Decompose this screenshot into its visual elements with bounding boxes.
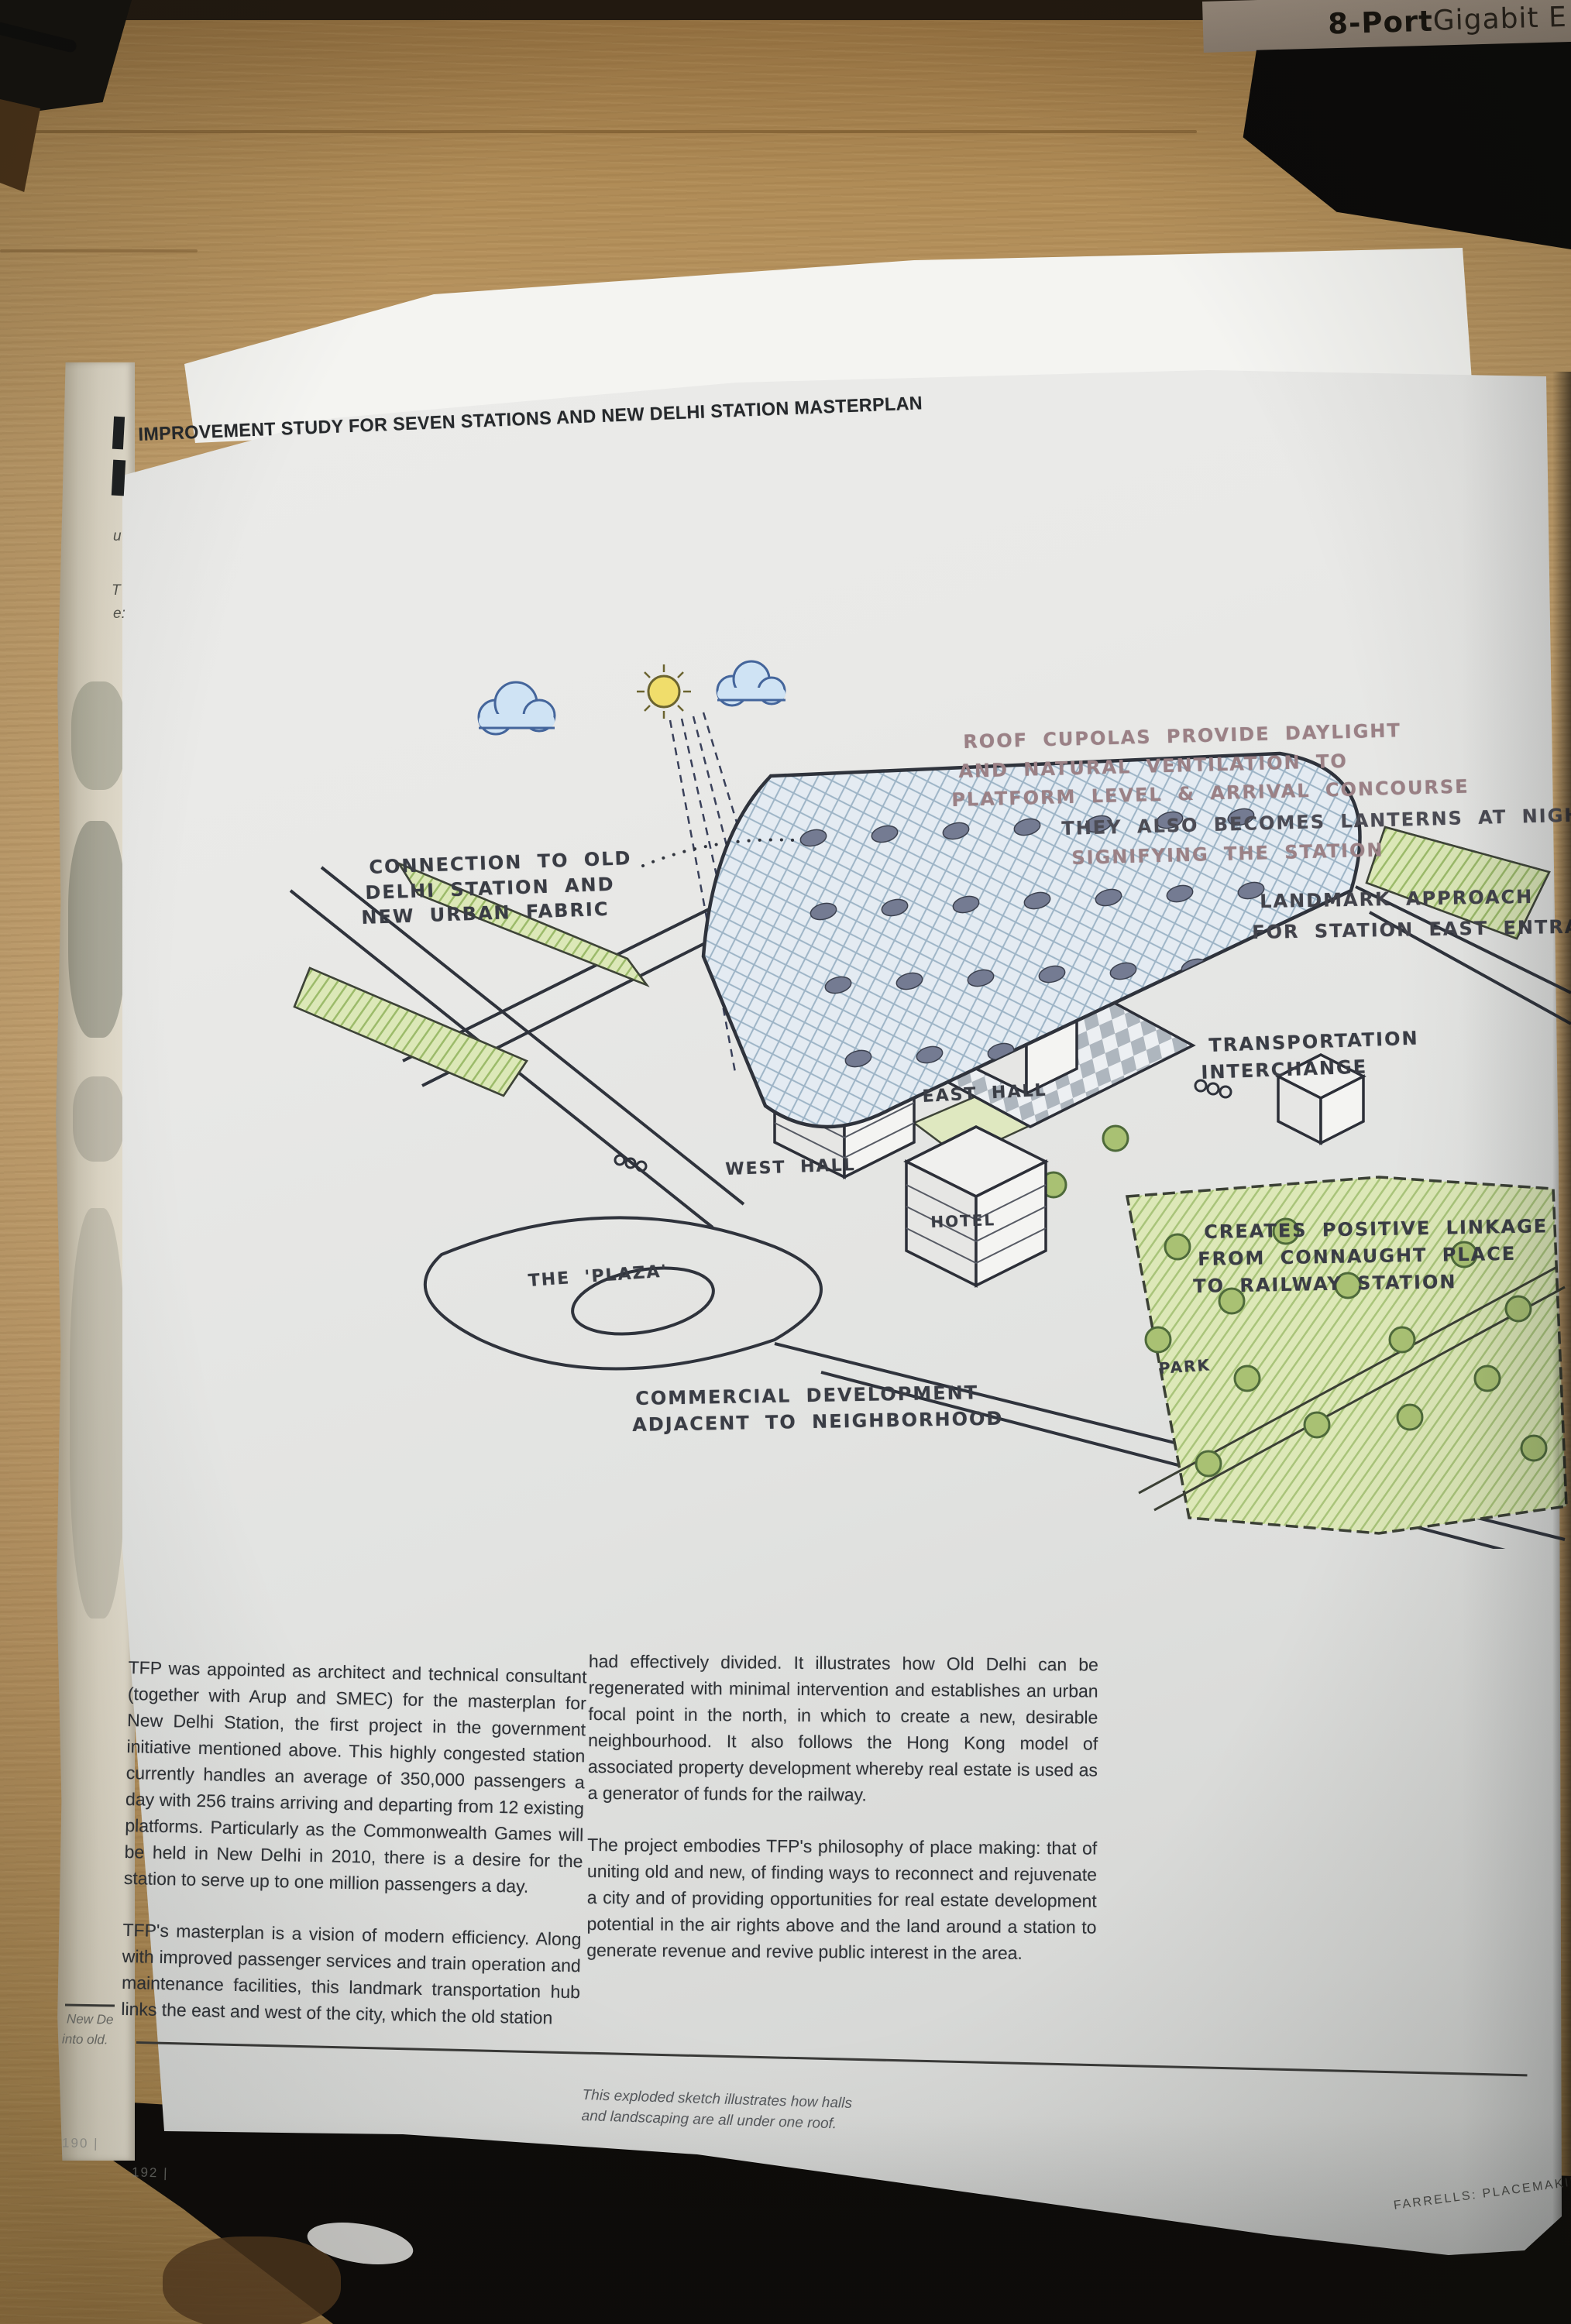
edge-text-fragment: T <box>112 582 121 599</box>
right-edge-shadow <box>1552 372 1571 2246</box>
cloud-icon <box>717 661 785 705</box>
switch-label-bold: 8-Port <box>1328 4 1434 40</box>
paragraph: had effectively divided. It illustrates … <box>588 1648 1098 1810</box>
page-edge-smudge <box>68 821 125 1038</box>
sun-icon <box>637 664 691 719</box>
desk-scuff-mark <box>163 2236 341 2324</box>
body-column-left: TFP was appointed as architect and techn… <box>120 1654 587 2057</box>
desk-plank-seam <box>0 249 198 252</box>
edge-text-fragment: e: <box>113 606 125 623</box>
photo-of-book-page: 8-Port Gigabit E u T e: IMPROVEMENT STUD… <box>0 0 1571 2324</box>
cropped-heading-fragment <box>112 417 125 450</box>
desk-plank-seam <box>0 130 1197 133</box>
page-edge-smudge <box>71 681 125 790</box>
paragraph: TFP's masterplan is a vision of modern e… <box>121 1917 582 2031</box>
page-number-under: 190 | <box>62 2136 99 2152</box>
switch-label-rest: Gigabit E <box>1432 1 1567 36</box>
edge-text-fragment: u <box>113 528 122 545</box>
annotation-line: TO RAILWAY STATION <box>1193 1271 1457 1297</box>
plaza-loop-road <box>425 1217 821 1368</box>
page-edge-smudge <box>73 1076 124 1162</box>
label-park: PARK <box>1158 1355 1212 1378</box>
paragraph: TFP was appointed as architect and techn… <box>124 1654 587 1900</box>
paragraph: The project embodies TFP's philosophy of… <box>586 1831 1097 1967</box>
cropped-heading-fragment <box>112 460 125 496</box>
page-edge-smudge <box>70 1208 125 1619</box>
margin-note-line2: into old. <box>62 2031 108 2048</box>
label-hotel: HOTEL <box>930 1210 996 1231</box>
cloud-icon <box>479 682 555 734</box>
margin-note-line1: New De <box>67 2011 114 2027</box>
page-number-main: 192 | <box>132 2164 169 2181</box>
body-column-right: had effectively divided. It illustrates … <box>586 1648 1098 1993</box>
